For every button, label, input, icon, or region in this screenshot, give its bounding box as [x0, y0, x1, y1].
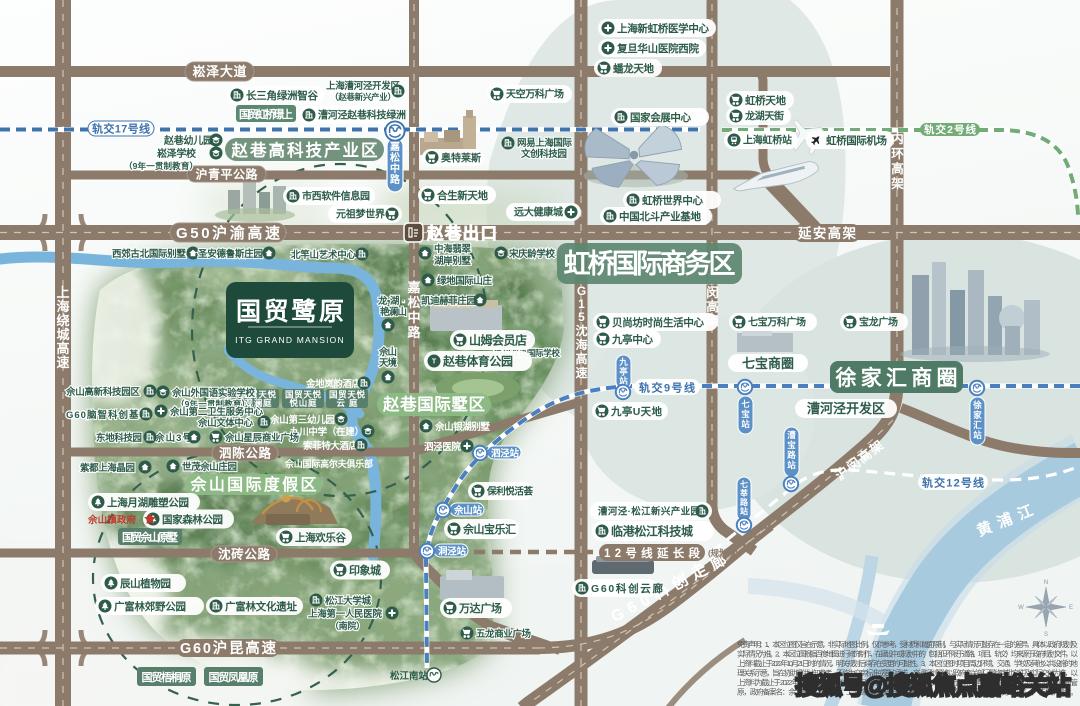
svg-text:艳澜山: 艳澜山: [380, 306, 407, 318]
svg-text:松江大学城: 松江大学城: [325, 595, 371, 607]
svg-text:松江南站: 松江南站: [390, 670, 428, 682]
svg-text:上海漕河泾开发区: 上海漕河泾开发区: [326, 80, 400, 92]
svg-text:G60脑智科创基地: G60脑智科创基地: [66, 409, 149, 421]
svg-text:佘山镇政府: 佘山镇政府: [87, 514, 136, 526]
svg-text:虹桥天地: 虹桥天地: [745, 94, 787, 107]
svg-text:佘山外国语实验学校: 佘山外国语实验学校: [171, 387, 255, 399]
svg-text:上资料截止于 2022 年 10 月 21 日时的情况，明关: 上资料截止于 2022 年 10 月 21 日时的情况，明关规划后续存在变更的可…: [737, 658, 1078, 668]
svg-text:虹桥国际商务区: 虹桥国际商务区: [564, 249, 736, 279]
svg-text:九亭U天地: 九亭U天地: [610, 405, 663, 418]
svg-text:中国北斗产业基地: 中国北斗产业基地: [619, 210, 702, 223]
svg-text:佘山星辰商业广场: 佘山星辰商业广场: [224, 432, 299, 444]
svg-text:国家会展中心: 国家会展中心: [630, 111, 692, 124]
svg-text:免责声明：1、本区位图仅旨在示意，非实际地图比例，仅供参考，: 免责声明：1、本区位图仅旨在示意，非实际地图比例，仅供参考，受材质和幅面限制，与…: [737, 639, 1078, 649]
svg-text:崧泽学校: 崧泽学校: [157, 147, 197, 160]
svg-text:佘山第三幼儿园: 佘山第三幼儿园: [269, 414, 335, 426]
svg-text:赵巷幼儿园: 赵巷幼儿园: [163, 134, 213, 147]
svg-text:N: N: [1044, 580, 1048, 586]
svg-text:紫都上海晶园: 紫都上海晶园: [80, 462, 135, 474]
svg-text:佘山站: 佘山站: [453, 505, 482, 517]
svg-text:上海虹桥站: 上海虹桥站: [743, 134, 792, 147]
svg-text:E: E: [1069, 605, 1073, 611]
svg-text:佘山高新科技园区: 佘山高新科技园区: [65, 386, 140, 398]
svg-text:合生新天地: 合生新天地: [436, 189, 489, 202]
svg-text:赵巷体育公园: 赵巷体育公园: [442, 353, 513, 368]
svg-text:万达广场: 万达广场: [458, 601, 502, 615]
svg-text:山姆会员店: 山姆会员店: [469, 332, 527, 347]
svg-text:S: S: [1044, 632, 1048, 638]
svg-text:七宝站: 七宝站: [741, 399, 750, 429]
svg-text:轨交2号线: 轨交2号线: [924, 123, 977, 136]
svg-text:徐家汇站: 徐家汇站: [972, 400, 982, 440]
svg-text:天境: 天境: [379, 357, 397, 369]
svg-text:沈砖公路: 沈砖公路: [218, 547, 270, 562]
svg-text:远大健康城: 远大健康城: [514, 206, 563, 219]
svg-text:宝龙广场: 宝龙广场: [859, 316, 898, 329]
svg-text:文创科技园: 文创科技园: [520, 148, 567, 160]
svg-text:上海欢乐谷: 上海欢乐谷: [295, 531, 347, 544]
svg-text:佘山文体中心: 佘山文体中心: [197, 417, 253, 429]
svg-text:搜狐号@搜狐焦点嘉峪关站: 搜狐号@搜狐焦点嘉峪关站: [795, 671, 1071, 700]
svg-text:辰山植物园: 辰山植物园: [120, 577, 171, 590]
svg-text:嘉松中路: 嘉松中路: [389, 140, 401, 186]
svg-text:(规划中): (规划中): [708, 548, 738, 558]
svg-text:（南院）: （南院）: [330, 620, 365, 631]
svg-text:中海翡翠: 中海翡翠: [434, 243, 471, 255]
svg-text:凯迪赫菲庄园: 凯迪赫菲庄园: [421, 295, 476, 307]
svg-text:复旦华山医院西院: 复旦华山医院西院: [616, 42, 700, 55]
svg-text:九亭站: 九亭站: [618, 357, 628, 386]
svg-text:保利悦活荟: 保利悦活荟: [486, 485, 533, 497]
svg-text:漕河泾赵巷科技绿洲: 漕河泾赵巷科技绿洲: [318, 109, 406, 122]
svg-text:上海第一人民医院: 上海第一人民医院: [308, 608, 382, 620]
svg-text:七宝商圈: 七宝商圈: [742, 356, 794, 371]
svg-text:西郊古北国际别墅: 西郊古北国际别墅: [112, 248, 186, 260]
svg-text:绿地国际山庄: 绿地国际山庄: [437, 275, 492, 287]
svg-text:上海新虹桥医学中心: 上海新虹桥医学中心: [617, 22, 710, 35]
svg-text:市西软件信息园: 市西软件信息园: [302, 190, 370, 203]
svg-text:元祖梦世界: 元祖梦世界: [336, 208, 385, 221]
svg-text:圣安德鲁斯庄园: 圣安德鲁斯庄园: [197, 248, 263, 260]
svg-text:佘山国际度假区: 佘山国际度假区: [190, 475, 317, 494]
svg-text:洞泾站: 洞泾站: [437, 546, 466, 558]
svg-text:龙湖天街: 龙湖天街: [744, 110, 784, 123]
svg-text:漕宝路站: 漕宝路站: [786, 430, 796, 470]
svg-text:长三角绿洲智谷: 长三角绿洲智谷: [246, 89, 319, 102]
svg-text:印象城: 印象城: [349, 563, 381, 577]
svg-text:国贸佘山原墅: 国贸佘山原墅: [122, 530, 178, 544]
svg-text:金地岚韵酒店: 金地岚韵酒店: [305, 378, 361, 390]
svg-text:国贸凤凰原: 国贸凤凰原: [209, 670, 259, 684]
svg-text:宋庆龄学校: 宋庆龄学校: [508, 248, 555, 260]
svg-text:漕河泾·松江新兴产业园: 漕河泾·松江新兴产业园: [598, 505, 700, 517]
svg-text:佘山国际高尔夫俱乐部: 佘山国际高尔夫俱乐部: [284, 458, 373, 469]
svg-text:W: W: [1018, 605, 1024, 611]
svg-text:天空万科广场: 天空万科广场: [506, 88, 564, 101]
svg-text:七莘路站: 七莘路站: [740, 479, 749, 516]
svg-text:泗泾医院: 泗泾医院: [424, 441, 461, 453]
svg-text:佘山银湖别墅: 佘山银湖别墅: [434, 421, 490, 433]
svg-text:佘山第二卫生服务中心: 佘山第二卫生服务中心: [169, 406, 263, 418]
svg-text:佘山宝乐汇: 佘山宝乐汇: [462, 522, 516, 536]
svg-text:赵巷国际墅区: 赵巷国际墅区: [382, 394, 486, 414]
svg-text:东地科技园: 东地科技园: [96, 432, 142, 444]
svg-text:贝尚坊时尚生活中心: 贝尚坊时尚生活中心: [612, 316, 705, 329]
svg-text:轨交17号线: 轨交17号线: [92, 122, 150, 136]
svg-text:实际情况为准。2、本区位图根据百度地图进行修饰制作，在建设中: 实际情况为准。2、本区位图根据百度地图进行修饰制作，在建设中或规划中的（包括但不…: [737, 649, 1078, 659]
svg-text:ITG GRAND MANSION: ITG GRAND MANSION: [235, 335, 345, 345]
svg-text:G60沪昆高速: G60沪昆高速: [180, 639, 277, 657]
svg-text:国贸虹桥璟上: 国贸虹桥璟上: [239, 107, 293, 121]
svg-text:临港松江科技城: 临港松江科技城: [611, 523, 693, 538]
svg-text:泗陈公路: 泗陈公路: [219, 446, 271, 461]
svg-text:九亭中心: 九亭中心: [611, 333, 654, 346]
svg-text:广富林文化遗址: 广富林文化遗址: [225, 600, 298, 613]
svg-text:上海月湖雕塑公园: 上海月湖雕塑公园: [107, 496, 189, 509]
svg-text:世茂佘山庄园: 世茂佘山庄园: [182, 461, 237, 473]
svg-text:徐家汇商圈: 徐家汇商圈: [835, 366, 958, 390]
svg-text:虹桥世界中心: 虹桥世界中心: [642, 194, 704, 207]
svg-text:国家森林公园: 国家森林公园: [162, 513, 223, 526]
svg-text:广富林郊野公园: 广富林郊野公园: [114, 600, 186, 613]
svg-text:延安高架: 延安高架: [797, 225, 857, 241]
svg-text:（赵巷新兴产业）: （赵巷新兴产业）: [330, 92, 396, 102]
svg-text:（9年一贯制教育）: （9年一贯制教育）: [124, 161, 198, 171]
svg-text:沪青平公路: 沪青平公路: [196, 167, 259, 182]
svg-text:虹桥国际机场: 虹桥国际机场: [826, 134, 888, 147]
svg-text:上海绕城高速: 上海绕城高速: [56, 285, 69, 370]
svg-text:九川中学（在建）: 九川中学（在建）: [289, 426, 364, 438]
svg-text:泗泾站: 泗泾站: [491, 448, 519, 460]
svg-text:五龙商业广场: 五龙商业广场: [476, 628, 531, 640]
svg-text:国贸梧桐原: 国贸梧桐原: [142, 670, 192, 684]
svg-text:蟠龙天地: 蟠龙天地: [613, 62, 655, 75]
svg-text:崧泽大道: 崧泽大道: [193, 64, 247, 79]
svg-text:索菲特大酒店: 索菲特大酒店: [303, 440, 358, 452]
svg-text:轨交9号线: 轨交9号线: [639, 381, 695, 395]
svg-text:国贸天悦: 国贸天悦: [329, 390, 365, 400]
svg-text:悦山庭: 悦山庭: [290, 398, 317, 408]
svg-text:轨交12号线: 轨交12号线: [922, 476, 984, 490]
svg-text:嘉松中路: 嘉松中路: [406, 280, 421, 340]
svg-text:七宝万科广场: 七宝万科广场: [748, 316, 806, 329]
svg-text:佘山: 佘山: [378, 346, 397, 358]
svg-text:G60科创云廊: G60科创云廊: [591, 582, 664, 595]
svg-text:网易上海国际: 网易上海国际: [517, 137, 572, 149]
svg-text:奥特莱斯: 奥特莱斯: [441, 152, 481, 165]
svg-text:湖岸别墅: 湖岸别墅: [434, 255, 471, 267]
svg-text:北竿山艺术中心: 北竿山艺术中心: [291, 249, 356, 261]
svg-text:佘山3号: 佘山3号: [154, 432, 192, 444]
svg-text:漕河泾开发区: 漕河泾开发区: [807, 401, 885, 416]
